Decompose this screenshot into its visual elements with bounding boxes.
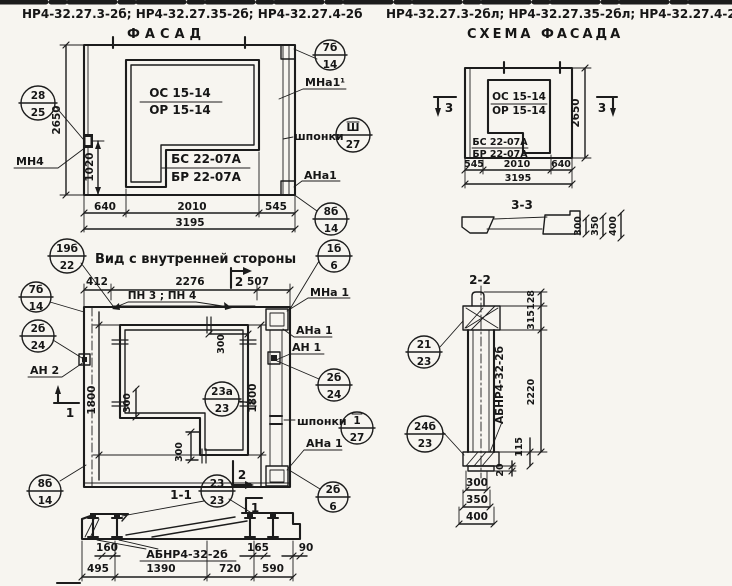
inner-balloon-top-left: 19б 22 [48, 239, 86, 273]
balloon-bottom-value: 25 [31, 107, 46, 119]
section22-abnr-label: АБНР4-32-2б [494, 346, 506, 424]
inner-dim-2276: 2276 [175, 276, 204, 288]
facade-os-label: ОС 15-14 [149, 86, 211, 100]
balloon-top-value: 8б [324, 206, 339, 218]
inner-balloon-right: 2б 24 [316, 369, 352, 401]
inner-shponki-label: шпонки [297, 415, 347, 428]
balloon-top-value: 28 [31, 90, 46, 102]
balloon-bottom-value: 23 [215, 403, 230, 415]
facade-bs-label: БС 22-07А [171, 152, 242, 166]
facade-view: ОС 15-14 ОР 15-14 БС 22-07А БР 22-07А 26… [14, 37, 372, 235]
scheme-dim-640: 640 [551, 159, 571, 170]
scheme-dim-545: 545 [464, 159, 484, 170]
facade-balloon-top-right: 7б 14 [313, 40, 347, 71]
balloon-bottom-value: 6 [330, 260, 337, 272]
facade-balloon-keys: Ш 27 [334, 118, 372, 152]
inner-ana1-bottom-label: АНа 1 [306, 437, 343, 450]
section22-dim-2220: 2220 [526, 378, 537, 405]
section22-title: 2-2 [469, 273, 491, 287]
facade-balloon-bottom-right: 8б 14 [313, 203, 349, 235]
scheme-dim-3195: 3195 [505, 173, 531, 184]
scheme-mark3-left: 3 [445, 101, 453, 115]
facade-ana1-label: АНа1 [304, 169, 337, 182]
inner-balloon-left: 2б 24 [20, 320, 56, 352]
scheme-title: СХЕМА ФАСАДА [467, 27, 623, 42]
balloon-top-value: 7б [323, 42, 338, 54]
facade-title: ФАСАД [127, 27, 206, 42]
scheme-mark3-right: 3 [598, 101, 606, 115]
section22-dim-115: 115 [514, 437, 525, 457]
inner-an1-label: АН 1 [292, 341, 321, 354]
balloon-top-value: Ш [347, 122, 360, 134]
section22-dim-400: 400 [466, 511, 488, 523]
inner-dim-1800-right: 1800 [247, 383, 259, 412]
inner-an2-label: АН 2 [30, 364, 59, 377]
inner-view: Вид с внутренней стороны 412 2276 507 ПН… [19, 239, 464, 516]
balloon-top-value: 2б [31, 323, 46, 335]
section11-dim-720: 720 [219, 563, 241, 575]
scheme-os-label: ОС 15-14 [492, 91, 546, 103]
section11-dim-495: 495 [87, 563, 109, 575]
inner-dim-1800-left: 1800 [86, 385, 98, 414]
section11-dim-1390: 1390 [146, 563, 175, 575]
balloon-bottom-value: 14 [324, 223, 339, 235]
balloon-top-value: 2б [326, 484, 341, 496]
section11-dim-165: 165 [247, 542, 269, 554]
balloon-top-value: 1 [353, 415, 360, 427]
inner-mark2-top: 2 [235, 275, 243, 289]
balloon-bottom-value: 14 [29, 301, 44, 313]
facade-dim-3195: 3195 [175, 217, 204, 229]
facade-br-label: БР 22-07А [171, 170, 241, 184]
section11-dim-590: 590 [262, 563, 284, 575]
inner-title: Вид с внутренней стороны [95, 252, 296, 267]
scheme-dim-2010: 2010 [504, 159, 531, 170]
section22-dim-300: 300 [466, 477, 488, 489]
scheme-bs-label: БС 22-07А [472, 137, 528, 148]
balloon-top-value: 2б [327, 372, 342, 384]
section11-anchors [88, 512, 278, 537]
left-assembly-code: НР4-32.27.3-2б; НР4-32.27.35-2б; НР4-32.… [22, 7, 363, 21]
facade-dim-545: 545 [265, 201, 287, 213]
balloon-top-value: 23 [210, 478, 225, 490]
facade-anchor-dim: 1020 [84, 152, 96, 181]
section-1-1: 1-1 1 160 165 90 АБНР4-32-2б 495 1390 72… [79, 488, 313, 581]
inner-dim-412: 412 [86, 276, 108, 288]
section33-dim-300: 300 [573, 216, 584, 236]
balloon-bottom-value: 23 [418, 438, 433, 450]
inner-balloon-bottom-right: 2б 6 [316, 482, 350, 513]
balloon-top-value: 21 [417, 339, 432, 351]
facade-dim-2010: 2010 [177, 201, 206, 213]
inner-ana1-top-label: АНа 1 [296, 324, 333, 337]
balloon-top-value: 7б [29, 284, 44, 296]
section22-balloon-bottom: 24б 23 [405, 416, 445, 452]
section22-dim-20: 20 [495, 463, 506, 477]
inner-balloon-left-upper: 7б 14 [19, 282, 53, 313]
inner-balloon-bottom-left: 8б 14 [27, 475, 63, 507]
balloon-bottom-value: 23 [417, 356, 432, 368]
balloon-bottom-value: 24 [327, 389, 342, 401]
facade-mna1-label: МНа1¹ [305, 76, 345, 89]
section11-dim-90: 90 [299, 542, 314, 554]
right-assembly-code: НР4-32.27.3-2бл; НР4-32.27.35-2бл; НР4-3… [386, 7, 732, 21]
section11-title: 1-1 [170, 488, 192, 502]
inner-dim-300-side: 300 [122, 393, 133, 413]
section22-dim-350: 350 [466, 494, 488, 506]
inner-balloon-top-right: 1б 6 [316, 240, 352, 272]
drawing-sheet: НР4-32.27.3-2б; НР4-32.27.35-2б; НР4-32.… [0, 0, 732, 586]
section33-left-block [462, 217, 494, 233]
section33-dim-350: 350 [590, 216, 601, 236]
facade-or-label: ОР 15-14 [149, 103, 211, 117]
section-3-3: 3-3 300 350 400 [462, 198, 624, 241]
inner-balloon-cut: 23 23 [199, 475, 235, 507]
section11-abnr-label: АБНР4-32-2б [146, 548, 228, 561]
inner-balloon-opening: 23а 23 [203, 382, 241, 416]
balloon-bottom-value: 14 [323, 59, 338, 71]
scheme-height-dim: 2650 [570, 98, 582, 127]
balloon-top-value: 1б [327, 243, 342, 255]
inner-dim-300-top: 300 [216, 334, 227, 354]
facade-dim-640: 640 [94, 201, 116, 213]
balloon-bottom-value: 23 [210, 495, 225, 507]
scheme-view: ОС 15-14 ОР 15-14 БС 22-07А БР 22-07А 3 … [434, 62, 617, 188]
facade-mn4-label: МН4 [16, 155, 44, 168]
headers: НР4-32.27.3-2б; НР4-32.27.35-2б; НР4-32.… [22, 7, 732, 42]
balloon-top-value: 24б [414, 421, 436, 433]
section33-dim-400: 400 [608, 216, 619, 236]
inner-mark2-bottom: 2 [238, 468, 246, 482]
inner-dim-300-step: 300 [174, 442, 185, 462]
balloon-bottom-value: 22 [60, 260, 75, 272]
balloon-top-value: 19б [56, 243, 78, 255]
inner-dim-507: 507 [247, 276, 269, 288]
section22-dim-128: 128 [526, 290, 537, 310]
balloon-bottom-value: 6 [329, 501, 336, 513]
balloon-bottom-value: 27 [350, 432, 365, 444]
balloon-bottom-value: 24 [31, 340, 46, 352]
scan-edge [0, 2, 732, 583]
section33-title: 3-3 [511, 198, 533, 212]
inner-mark1: 1 [66, 406, 74, 420]
inner-mna1-label: МНа 1 [310, 286, 349, 299]
section22-balloon-top: 21 23 [406, 336, 442, 368]
inner-pn-label: ПН 3 ; ПН 4 [128, 290, 197, 302]
section-2-2: 2-2 АБНР4-32-2б 128 315 2220 115 20 [405, 273, 547, 527]
balloon-bottom-value: 14 [38, 495, 53, 507]
balloon-top-value: 23а [211, 386, 233, 398]
balloon-top-value: 8б [38, 478, 53, 490]
facade-height-dim: 2650 [51, 105, 63, 134]
section22-dim-315: 315 [526, 310, 537, 330]
scheme-or-label: ОР 15-14 [492, 105, 546, 117]
balloon-bottom-value: 27 [346, 139, 361, 151]
